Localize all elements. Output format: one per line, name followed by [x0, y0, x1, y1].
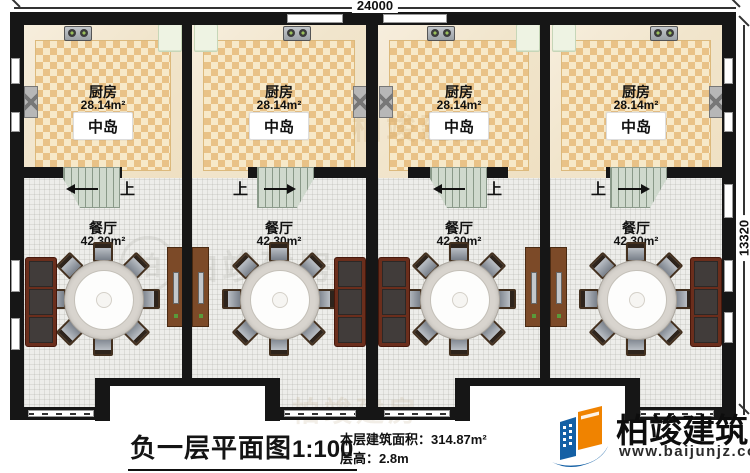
stair-up-label: 上: [233, 178, 248, 199]
floor-height-info: 层高：2.8m: [340, 448, 409, 467]
table-center: [629, 292, 645, 308]
window: [724, 112, 733, 132]
chair-icon: [579, 289, 599, 309]
table-center: [272, 292, 288, 308]
plan-title-text: 负一层平面图: [130, 433, 292, 463]
window: [724, 312, 733, 343]
stair-up-label: 上: [120, 178, 135, 199]
water-heater-icon: [709, 86, 723, 118]
stair-up-label: 上: [591, 178, 606, 199]
window: [724, 58, 733, 84]
sofa: [334, 257, 366, 347]
table-center: [452, 292, 468, 308]
chair-icon: [449, 242, 469, 262]
window: [724, 260, 733, 292]
floor-area-info: 本层建筑面积：314.87m²: [340, 429, 487, 448]
stove-icon: [64, 26, 92, 41]
chair-icon: [269, 242, 289, 262]
party-wall: [182, 25, 192, 386]
chair-icon: [222, 289, 242, 309]
company-url: www.baijunjz.com: [619, 443, 750, 460]
kitchen-island: 中岛: [249, 112, 309, 140]
plan-title: 负一层平面图1:100: [128, 428, 357, 471]
kitchen-island: 中岛: [606, 112, 666, 140]
window: [384, 410, 450, 417]
stove-icon: [650, 26, 678, 41]
sofa: [690, 257, 722, 347]
party-wall: [540, 25, 550, 386]
kitchen-island: 中岛: [73, 112, 133, 140]
party-wall: [366, 25, 378, 420]
fridge-icon: [516, 24, 540, 52]
sofa: [378, 257, 410, 347]
window: [724, 184, 733, 218]
window: [11, 260, 20, 292]
window: [11, 318, 20, 350]
window: [28, 410, 94, 417]
floor-plan-canvas: 柏 柏竣建房 柏竣建房 柏竣建房 厨房 28.14m² 中岛 厨房 28.14m…: [0, 0, 750, 473]
window: [383, 14, 447, 23]
dimension-top-label: 24000: [352, 0, 398, 13]
stove-icon: [427, 26, 455, 41]
company-logo-icon: [548, 402, 616, 470]
chair-icon: [626, 242, 646, 262]
window: [11, 112, 20, 132]
exterior-recess: [110, 386, 265, 421]
stair-direction-arrow-icon: [618, 188, 642, 190]
stair-direction-arrow-icon: [74, 188, 98, 190]
water-heater-icon: [379, 86, 393, 118]
stair-up-label: 上: [487, 178, 502, 199]
kitchen-island: 中岛: [429, 112, 489, 140]
fridge-icon: [194, 24, 218, 52]
fridge-icon: [552, 24, 576, 52]
window: [287, 14, 343, 23]
cabinet: [550, 247, 567, 327]
sofa: [25, 257, 57, 347]
chair-icon: [93, 242, 113, 262]
kitchen-area-label: 28.14m²: [437, 98, 482, 112]
kitchen-area-label: 28.14m²: [614, 98, 659, 112]
window: [11, 58, 20, 84]
stair-direction-arrow-icon: [441, 188, 465, 190]
dimension-right-label: 13320: [737, 215, 750, 261]
stair-direction-arrow-icon: [264, 188, 288, 190]
cabinet: [192, 247, 209, 327]
kitchen-area-label: 28.14m²: [257, 98, 302, 112]
stove-icon: [283, 26, 311, 41]
window: [284, 410, 356, 417]
exterior-wall-top: [10, 12, 736, 25]
kitchen-area-label: 28.14m²: [81, 98, 126, 112]
table-center: [96, 292, 112, 308]
water-heater-icon: [24, 86, 38, 118]
fridge-icon: [158, 24, 182, 52]
water-heater-icon: [353, 86, 367, 118]
